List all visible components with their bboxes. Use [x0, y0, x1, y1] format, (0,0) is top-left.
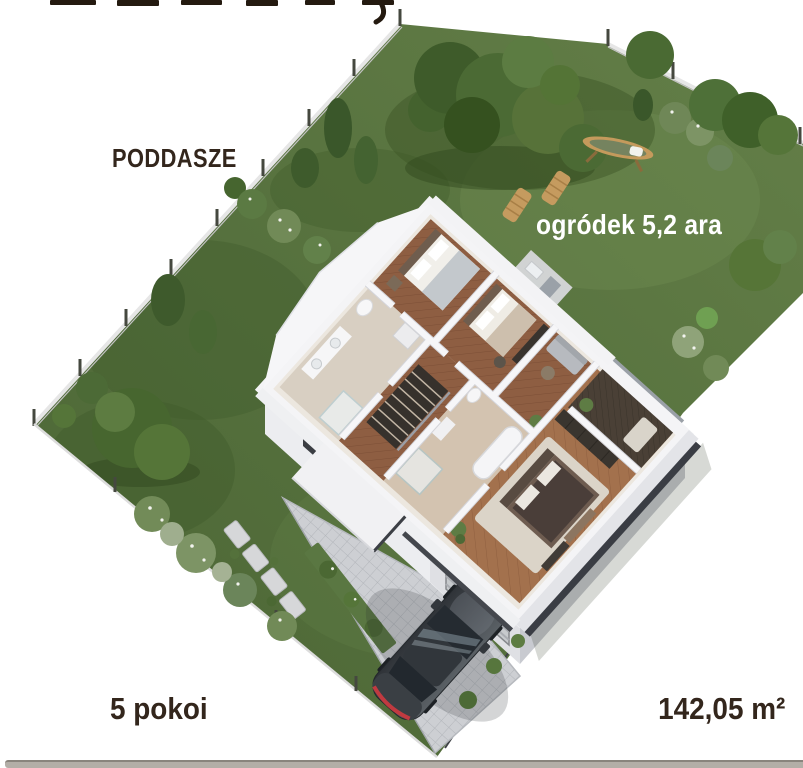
- listing-floorplan-image: PODDASZE ogródek 5,2 ara 5 pokoi 142,05 …: [0, 0, 803, 768]
- total-area-label: 142,05 m²: [658, 693, 785, 726]
- floor-label: PODDASZE: [112, 145, 237, 172]
- scene: [0, 0, 803, 768]
- bottom-divider-bar: [5, 760, 803, 768]
- garden-area-label: ogródek 5,2 ara: [536, 210, 722, 239]
- room-count-label: 5 pokoi: [110, 693, 208, 726]
- cropped-title-fragments: [50, 0, 394, 22]
